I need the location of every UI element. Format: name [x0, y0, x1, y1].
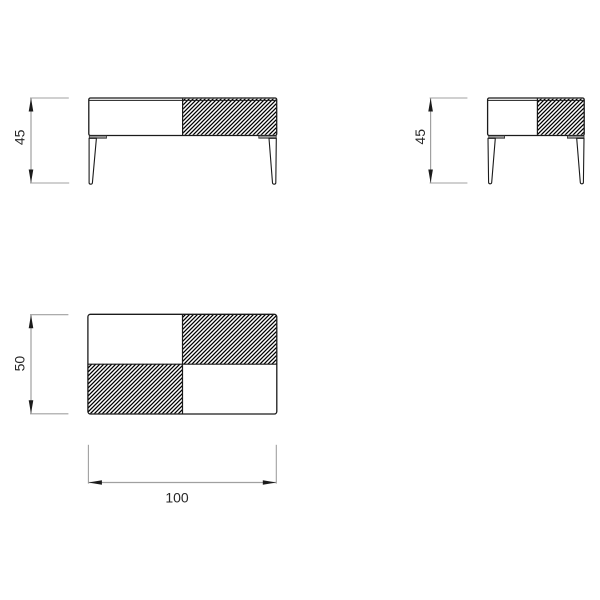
svg-text:50: 50: [11, 356, 27, 372]
svg-text:45: 45: [12, 129, 28, 145]
svg-text:100: 100: [165, 489, 189, 505]
svg-text:45: 45: [412, 129, 428, 145]
